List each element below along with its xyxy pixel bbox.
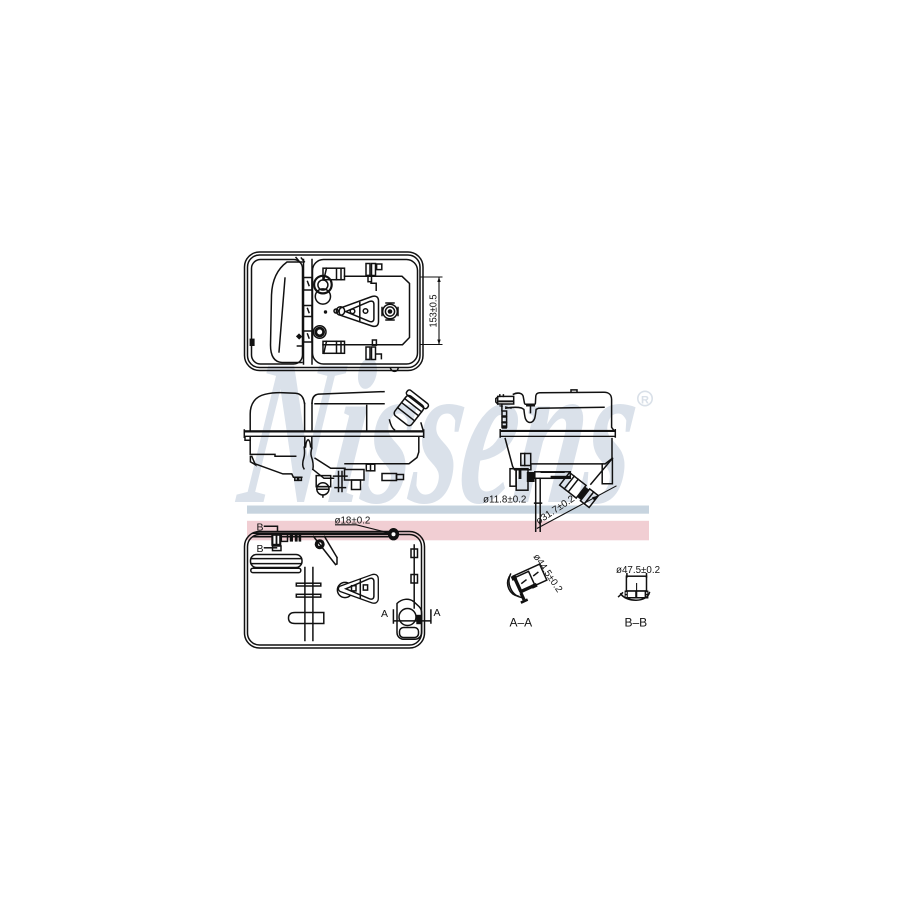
svg-text:R: R bbox=[641, 395, 649, 407]
svg-text:ø18±0.2: ø18±0.2 bbox=[335, 515, 371, 526]
svg-text:153±0.5: 153±0.5 bbox=[429, 294, 440, 327]
svg-text:ø11.8±0.2: ø11.8±0.2 bbox=[483, 495, 526, 506]
svg-text:A: A bbox=[434, 607, 441, 619]
svg-text:ø47.5±0.2: ø47.5±0.2 bbox=[616, 565, 660, 576]
svg-text:B–B: B–B bbox=[625, 616, 648, 630]
svg-text:A–A: A–A bbox=[510, 616, 533, 630]
svg-text:B: B bbox=[257, 521, 264, 533]
svg-text:A: A bbox=[381, 608, 388, 620]
svg-text:B: B bbox=[257, 543, 264, 555]
